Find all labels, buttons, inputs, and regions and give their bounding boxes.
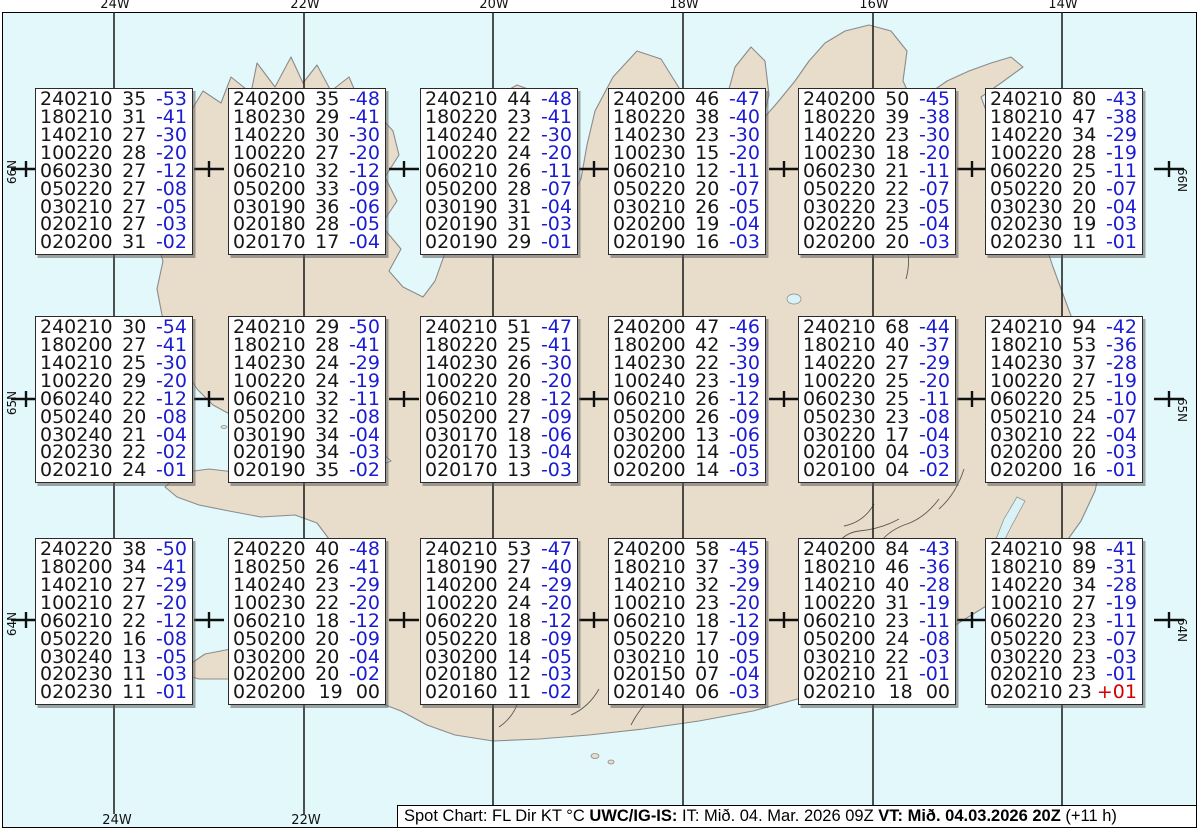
lon-label-bottom-24W: 24W	[102, 815, 131, 827]
spot-line: 02017017-04	[233, 234, 380, 252]
temp-value: +01	[1097, 684, 1137, 702]
temp-value: 00	[356, 684, 380, 702]
wind-kt-value: 14	[695, 462, 719, 480]
temp-value: -01	[541, 234, 572, 252]
spot-line: 02019035-02	[233, 462, 380, 480]
spot-box-r3c3: 24021053-4718019027-4014020024-291002202…	[420, 538, 578, 705]
spot-line: 02017013-03	[425, 462, 572, 480]
lon-label-bottom-22W: 22W	[291, 815, 320, 827]
spot-box-r1c1: 24021035-5318021031-4114021027-301002202…	[35, 88, 193, 255]
spot-box-r3c1: 24022038-5018020034-4114021027-291002102…	[35, 538, 193, 705]
spot-box-r2c1: 24021030-5418020027-4114021025-301002202…	[35, 316, 193, 483]
wind-kt-value: 18	[889, 684, 913, 702]
fl-dir-value: 020190	[233, 462, 306, 480]
spot-line: 02023011-01	[990, 234, 1137, 252]
fl-dir-value: 020200	[990, 462, 1063, 480]
wind-kt-value: 04	[885, 462, 909, 480]
temp-value: -03	[729, 234, 760, 252]
wind-kt-value: 06	[695, 684, 719, 702]
fl-dir-value: 020210	[990, 684, 1063, 702]
temp-value: -02	[349, 462, 380, 480]
fl-dir-value: 020140	[613, 684, 686, 702]
spot-box-r1c2: 24020035-4818023029-4114022030-301002202…	[228, 88, 386, 255]
wind-kt-value: 19	[319, 684, 343, 702]
fl-dir-value: 020210	[40, 462, 113, 480]
temp-value: -03	[541, 462, 572, 480]
wind-kt-value: 31	[122, 234, 146, 252]
fl-dir-value: 020190	[613, 234, 686, 252]
legend-text: (+11 h)	[1061, 807, 1117, 826]
wind-kt-value: 35	[315, 462, 339, 480]
spot-line: 0202101800	[803, 684, 950, 702]
temp-value: -02	[156, 234, 187, 252]
spot-line: 02023011-01	[40, 684, 187, 702]
spot-box-r2c4: 24020047-4618020042-3914023022-301002402…	[608, 316, 766, 483]
spot-line: 02020031-02	[40, 234, 187, 252]
lon-label-top-16W: 16W	[859, 0, 888, 11]
temp-value: -01	[156, 462, 187, 480]
wind-kt-value: 11	[507, 684, 531, 702]
spot-line: 02019029-01	[425, 234, 572, 252]
spot-box-r3c6: 24021098-4118021089-3114022034-281002102…	[985, 538, 1143, 705]
spot-line: 02020014-03	[613, 462, 760, 480]
spot-chart-figure: 24W22W20W18W16W14W24W22W66N65N64N66N65N6…	[0, 0, 1200, 830]
fl-dir-value: 020200	[803, 234, 876, 252]
lat-label-left-66N: 66N	[5, 160, 19, 184]
temp-value: -03	[729, 462, 760, 480]
lat-label-right-64N: 64N	[1175, 618, 1189, 642]
spot-line: 02020016-01	[990, 462, 1137, 480]
temp-value: -03	[919, 234, 950, 252]
temp-value: -02	[541, 684, 572, 702]
fl-dir-value: 020200	[40, 234, 113, 252]
legend-text-bold: UWC/IG-IS:	[589, 807, 677, 826]
spot-line: 02020020-03	[803, 234, 950, 252]
lon-label-top-22W: 22W	[290, 0, 319, 11]
fl-dir-value: 020210	[803, 684, 876, 702]
lat-label-right-66N: 66N	[1175, 168, 1189, 192]
fl-dir-value: 020100	[803, 462, 876, 480]
fl-dir-value: 020200	[233, 684, 306, 702]
spot-line: 02019016-03	[613, 234, 760, 252]
fl-dir-value: 020230	[40, 684, 113, 702]
spot-line: 02021023+01	[990, 684, 1137, 702]
temp-value: -01	[156, 684, 187, 702]
wind-kt-value: 16	[1072, 462, 1096, 480]
wind-kt-value: 11	[1072, 234, 1096, 252]
lat-label-left-65N: 65N	[5, 391, 19, 415]
fl-dir-value: 020170	[425, 462, 498, 480]
wind-kt-value: 23	[1068, 684, 1092, 702]
lon-label-top-14W: 14W	[1048, 0, 1077, 11]
legend-bar: Spot Chart: FL Dir KT °C UWC/IG-IS: IT: …	[397, 805, 1197, 828]
spot-line: 02014006-03	[613, 684, 760, 702]
wind-kt-value: 24	[122, 462, 146, 480]
temp-value: -03	[729, 684, 760, 702]
legend-text-bold: VT: Mið. 04.03.2026 20Z	[878, 807, 1061, 826]
fl-dir-value: 020190	[425, 234, 498, 252]
spot-box-r3c2: 24022040-4818025026-4114024023-291002302…	[228, 538, 386, 705]
wind-kt-value: 13	[507, 462, 531, 480]
temp-value: -01	[1106, 462, 1137, 480]
spot-box-r2c5: 24021068-4418021040-3714022027-291002202…	[798, 316, 956, 483]
spot-line: 02021024-01	[40, 462, 187, 480]
lon-label-top-18W: 18W	[669, 0, 698, 11]
fl-dir-value: 020230	[990, 234, 1063, 252]
fl-dir-value: 020160	[425, 684, 498, 702]
spot-box-r3c5: 24020084-4318021046-3614021040-281002203…	[798, 538, 956, 705]
spot-box-r1c4: 24020046-4718022038-4014023023-301002301…	[608, 88, 766, 255]
fl-dir-value: 020200	[613, 462, 686, 480]
spot-box-r2c2: 24021029-5018021028-4114023024-291002202…	[228, 316, 386, 483]
wind-kt-value: 11	[122, 684, 146, 702]
fl-dir-value: 020170	[233, 234, 306, 252]
temp-value: -01	[1106, 234, 1137, 252]
spot-box-r2c6: 24021094-4218021053-3614023037-281002202…	[985, 316, 1143, 483]
spot-box-r2c3: 24021051-4718022025-4114023026-301002202…	[420, 316, 578, 483]
wind-kt-value: 20	[885, 234, 909, 252]
temp-value: 00	[926, 684, 950, 702]
legend-text: IT: Mið. 04. Mar. 2026 09Z	[677, 807, 878, 826]
lon-label-top-24W: 24W	[100, 0, 129, 11]
lat-label-left-64N: 64N	[5, 612, 19, 636]
temp-value: -02	[919, 462, 950, 480]
lon-label-top-20W: 20W	[479, 0, 508, 11]
spot-line: 0202001900	[233, 684, 380, 702]
spot-line: 02010004-02	[803, 462, 950, 480]
spot-box-r1c3: 24021044-4818022023-4114024022-301002202…	[420, 88, 578, 255]
wind-kt-value: 29	[507, 234, 531, 252]
temp-value: -04	[349, 234, 380, 252]
lat-label-right-65N: 65N	[1175, 398, 1189, 422]
spot-line: 02016011-02	[425, 684, 572, 702]
wind-kt-value: 17	[315, 234, 339, 252]
wind-kt-value: 16	[695, 234, 719, 252]
spot-box-r3c4: 24020058-4518021037-3914021032-291002102…	[608, 538, 766, 705]
legend-text: Spot Chart: FL Dir KT °C	[404, 807, 589, 826]
spot-box-r1c6: 24021080-4318021047-3814022034-291002202…	[985, 88, 1143, 255]
spot-box-r1c5: 24020050-4518022039-3814022023-301002301…	[798, 88, 956, 255]
